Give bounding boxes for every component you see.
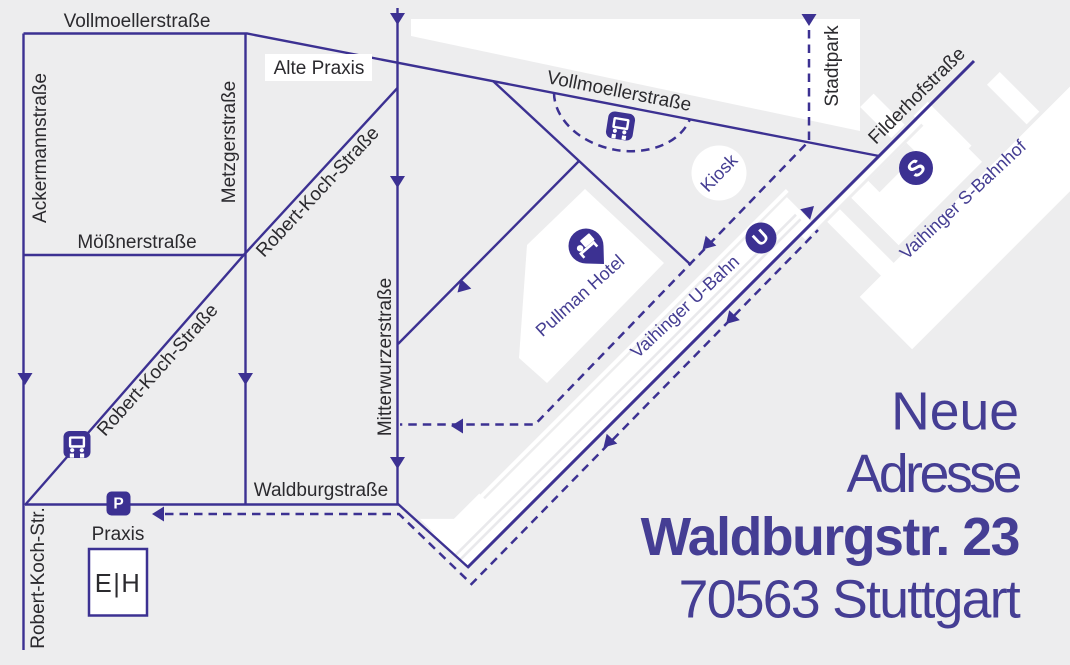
svg-text:Waldburgstraße: Waldburgstraße bbox=[254, 480, 388, 501]
svg-text:Neue: Neue bbox=[891, 383, 1019, 442]
svg-text:Metzgerstraße: Metzgerstraße bbox=[219, 81, 240, 203]
svg-text:Mößnerstraße: Mößnerstraße bbox=[77, 232, 196, 253]
svg-text:E|H: E|H bbox=[95, 570, 142, 598]
svg-text:Robert-Koch-Str.: Robert-Koch-Str. bbox=[28, 507, 49, 649]
svg-text:Mitterwurzerstraße: Mitterwurzerstraße bbox=[375, 278, 396, 436]
svg-text:Waldburgstr. 23: Waldburgstr. 23 bbox=[641, 508, 1019, 567]
svg-text:Adresse: Adresse bbox=[847, 445, 1021, 504]
svg-text:Stadtpark: Stadtpark bbox=[822, 25, 843, 107]
svg-text:Ackermannstraße: Ackermannstraße bbox=[30, 73, 51, 223]
svg-text:Alte Praxis: Alte Praxis bbox=[274, 58, 365, 79]
svg-text:Vollmoellerstraße: Vollmoellerstraße bbox=[64, 11, 211, 32]
svg-text:Praxis: Praxis bbox=[92, 524, 145, 545]
svg-text:P: P bbox=[113, 496, 123, 513]
svg-text:70563 Stuttgart: 70563 Stuttgart bbox=[679, 571, 1021, 630]
